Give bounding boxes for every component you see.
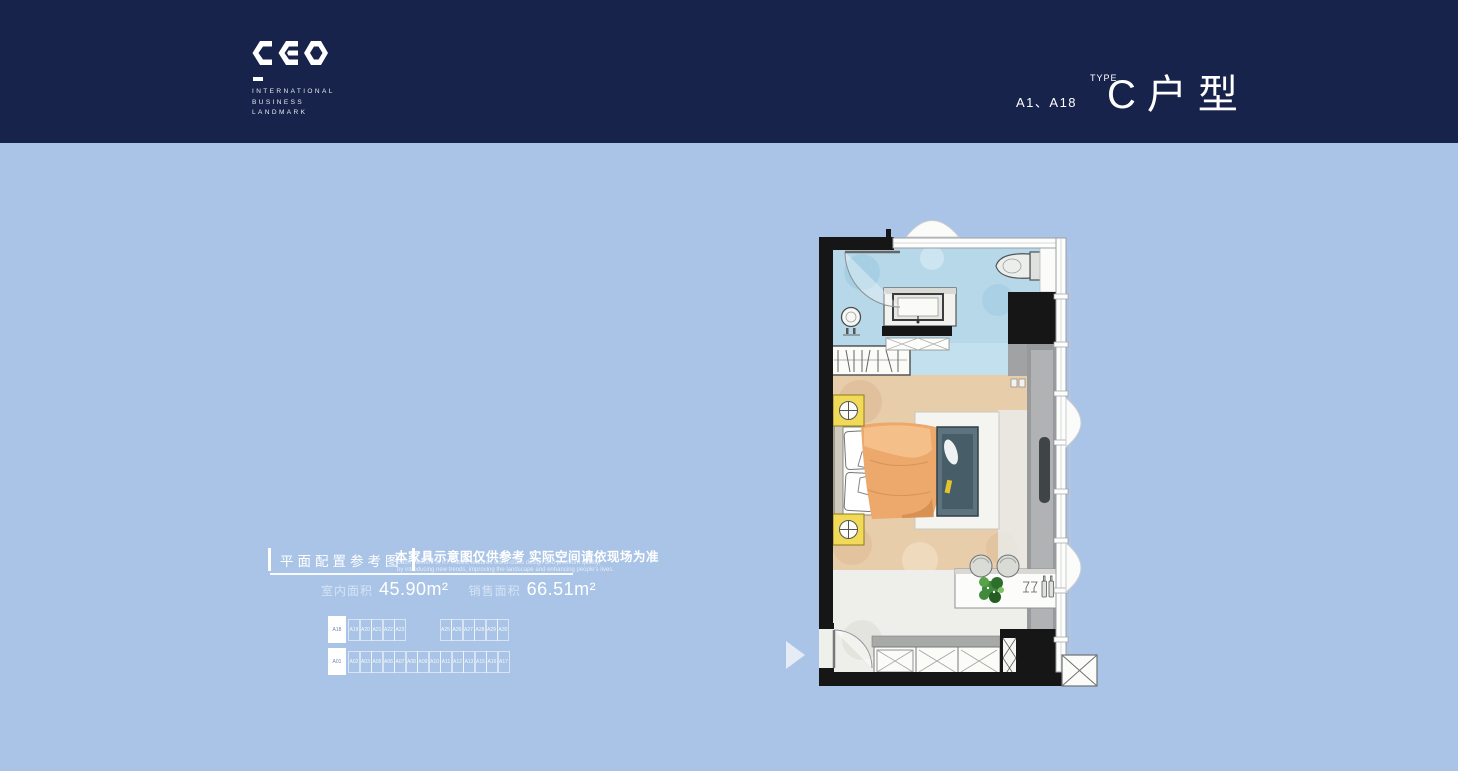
- keyplan-cell-A13: A13: [463, 651, 475, 673]
- page-title: C户型: [1107, 62, 1249, 120]
- area-indoor-label: 室内面积: [321, 582, 373, 599]
- area-indoor: 室内面积 45.90m²: [321, 579, 449, 600]
- keyplan-cell-A16: A16: [486, 651, 498, 673]
- page: INTERNATIONAL BUSINESS LANDMARK A1、A18 T…: [0, 0, 1458, 771]
- logo-line-2: BUSINESS: [252, 99, 362, 106]
- area-sales: 销售面积 66.51m²: [469, 579, 597, 600]
- keyplan-cell-A06: A06: [383, 651, 395, 673]
- keyplan-gap: [406, 619, 440, 641]
- keyplan-cell-A08: A08: [406, 651, 418, 673]
- keyplan-cell-A26: A26: [451, 619, 463, 641]
- tv-console-bench: [937, 427, 978, 516]
- window-band-top: [893, 238, 1056, 248]
- keyplan-cell-A25: A25: [440, 619, 452, 641]
- notice-en: Each element of KT Pacific features worl…: [397, 560, 614, 574]
- keyplan-cell-A03: A03: [360, 651, 372, 673]
- keyplan-cell-A09: A09: [417, 651, 429, 673]
- keyplan-cell-A10: A10: [429, 651, 441, 673]
- keyplan-cell-A21: A21: [371, 619, 383, 641]
- area-sales-label: 销售面积: [469, 582, 521, 599]
- bath-mat: [886, 338, 949, 350]
- keyplan-cell-A17: A17: [498, 651, 510, 673]
- areas: 室内面积 45.90m² 销售面积 66.51m²: [321, 579, 596, 600]
- column-top-right: [1008, 292, 1058, 344]
- title-rule: [270, 573, 573, 575]
- window-marker-top: [906, 221, 959, 238]
- window-marker-right-1: [1066, 398, 1081, 447]
- logo-dash: [253, 77, 263, 81]
- keyplan-cell-A20: A20: [360, 619, 372, 641]
- keyplan-cell-A22: A22: [383, 619, 395, 641]
- plant: [979, 577, 1004, 603]
- keyplan-row: A18A19A20A21A22A23A25A26A27A28A29A30: [328, 616, 509, 643]
- logo-line-1: INTERNATIONAL: [252, 88, 362, 95]
- bath-divider-wall: [882, 326, 952, 336]
- floor-strip: [998, 410, 1028, 572]
- nightstand-bottom: [833, 514, 864, 545]
- kitchen-cabinets: [872, 636, 1000, 675]
- keyplan-cell-A02: A02: [348, 651, 360, 673]
- nightstand-top: [833, 395, 864, 426]
- keyplan-cell-A19: A19: [348, 619, 360, 641]
- keyplan-cell-A29: A29: [486, 619, 498, 641]
- window-marker-right-2: [1066, 543, 1081, 592]
- window-band-right: [1054, 238, 1070, 672]
- keyplan-cell-A30: A30: [497, 619, 509, 641]
- entry-marker-arrow: [786, 641, 805, 669]
- keyplan-cell-A15: A15: [475, 651, 487, 673]
- floorplan: [780, 200, 1100, 695]
- bed: [834, 422, 978, 519]
- notice-en-line1: Each element of KT Pacific features worl…: [397, 560, 614, 567]
- keyplan: A18A19A20A21A22A23A25A26A27A28A29A30A01A…: [328, 616, 509, 675]
- headboard: [834, 426, 843, 516]
- keyplan-cell-A28: A28: [474, 619, 486, 641]
- keyplan-cell-A12: A12: [452, 651, 464, 673]
- window-nook: [1040, 248, 1056, 292]
- section-title-row: 平面配置参考图: [268, 548, 415, 571]
- unit-codes: A1、A18: [1016, 92, 1077, 111]
- keyplan-cell-A27: A27: [463, 619, 475, 641]
- keyplan-cell-A07: A07: [394, 651, 406, 673]
- keyplan-cell-A11: A11: [440, 651, 452, 673]
- keyplan-cell-A01: A01: [328, 648, 346, 675]
- ceo-logo: INTERNATIONAL BUSINESS LANDMARK: [252, 40, 362, 120]
- logo-line-3: LANDMARK: [252, 109, 362, 116]
- ac-unit: [1062, 655, 1097, 686]
- ceo-logo-icon: [252, 40, 328, 66]
- keyplan-cell-A23: A23: [394, 619, 406, 641]
- keyplan-row: A01A02A03A05A06A07A08A09A10A11A12A13A15A…: [328, 648, 509, 675]
- tv-screen: [1039, 437, 1050, 503]
- keyplan-cell-A18: A18: [328, 616, 346, 643]
- header: INTERNATIONAL BUSINESS LANDMARK A1、A18 T…: [0, 0, 1458, 143]
- area-sales-value: 66.51m²: [527, 579, 597, 600]
- section-title: 平面配置参考图: [271, 550, 412, 570]
- keyplan-cell-A05: A05: [371, 651, 383, 673]
- area-indoor-value: 45.90m²: [379, 579, 449, 600]
